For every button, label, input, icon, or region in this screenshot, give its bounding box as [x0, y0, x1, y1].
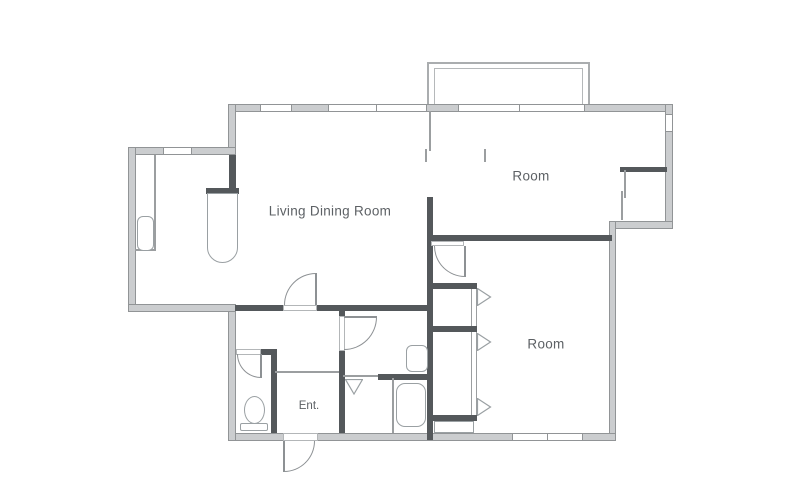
- toilet-bowl: [244, 396, 265, 424]
- door-arc-entrance: [284, 441, 315, 472]
- closet-sliding-line: [624, 170, 626, 198]
- interior-wall-closet-top: [429, 283, 477, 289]
- toilet-base: [240, 423, 268, 431]
- room-label-entrance: Ent.: [299, 400, 319, 412]
- sliding-door-line: [425, 149, 427, 162]
- bath-fold-opening: [343, 375, 378, 377]
- kitchen-sink: [137, 216, 154, 251]
- folding-door-icon: [477, 333, 492, 351]
- door-threshold-ldr: [283, 305, 317, 311]
- washbasin: [406, 345, 428, 372]
- room-label-living-dining: Living Dining Room: [269, 204, 391, 219]
- exterior-wall-right-lower: [609, 221, 616, 440]
- sliding-door-line: [484, 149, 486, 162]
- window: [260, 104, 292, 112]
- floor-plan: Living Dining Room Room Room Ent.: [0, 0, 800, 500]
- window: [458, 104, 520, 112]
- partition-ldr-room: [429, 111, 431, 151]
- closet-front-edge: [471, 289, 477, 415]
- interior-wall-top-closet-shelf: [620, 167, 667, 172]
- room-label-top-room: Room: [512, 169, 549, 184]
- window: [163, 147, 192, 155]
- exterior-wall-kitchen-left: [128, 147, 136, 312]
- window: [376, 104, 427, 112]
- door-arc-toilet: [237, 354, 261, 378]
- window: [519, 104, 585, 112]
- folding-door-icon: [477, 398, 492, 416]
- door-arc-washroom: [344, 317, 377, 350]
- door-arc-ldr: [284, 273, 316, 305]
- interior-wall-ldr-bottom-left: [235, 305, 283, 311]
- folding-door-icon: [345, 379, 363, 395]
- entrance-step-line: [275, 371, 339, 373]
- exterior-wall-top: [228, 104, 673, 112]
- interior-wall-center-vertical: [427, 197, 433, 440]
- window: [512, 433, 548, 441]
- interior-wall-ldr-bottom-right: [317, 305, 433, 311]
- door-threshold-entrance: [283, 433, 318, 441]
- window: [665, 114, 673, 132]
- bathtub: [396, 383, 426, 427]
- door-arc-room: [434, 246, 465, 277]
- room-label-bottom-room: Room: [527, 337, 564, 352]
- closet-sliding-line: [621, 191, 623, 220]
- balcony-rail-inner: [434, 68, 583, 105]
- interior-wall-toilet-right: [271, 349, 277, 433]
- closet-small-box: [434, 421, 474, 433]
- window: [328, 104, 377, 112]
- exterior-wall-step: [609, 221, 673, 229]
- kitchen-counter-edge: [154, 155, 156, 251]
- interior-wall-closet-divider-1: [429, 326, 477, 332]
- kitchen-counter: [207, 193, 238, 263]
- bathtub-edge-line: [392, 378, 394, 433]
- exterior-wall-kitchen-bottom: [128, 304, 236, 312]
- exterior-wall-hall-left: [228, 304, 236, 441]
- folding-door-icon: [477, 288, 492, 306]
- interior-wall-bath-divider: [378, 374, 433, 380]
- window: [547, 433, 583, 441]
